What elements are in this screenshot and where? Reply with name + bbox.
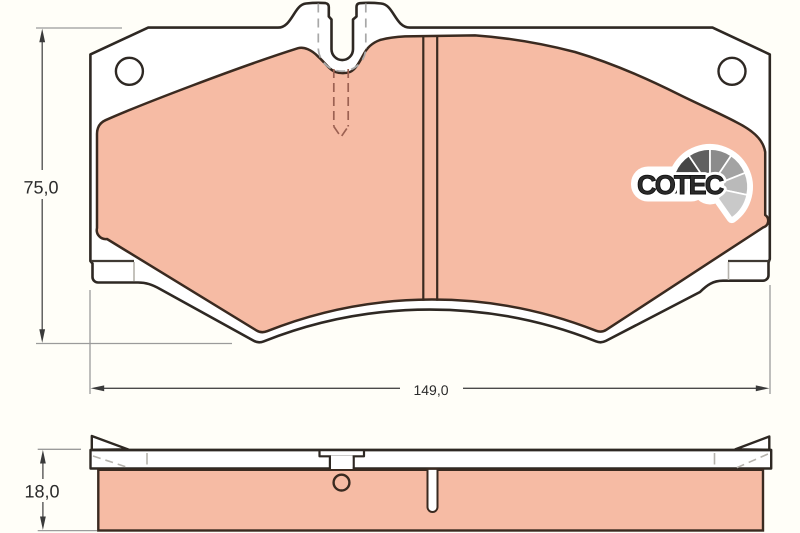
svg-text:18,0: 18,0 [24,482,59,502]
svg-text:75,0: 75,0 [23,178,58,198]
svg-text:COTEC: COTEC [637,170,724,200]
svg-text:149,0: 149,0 [413,382,448,398]
